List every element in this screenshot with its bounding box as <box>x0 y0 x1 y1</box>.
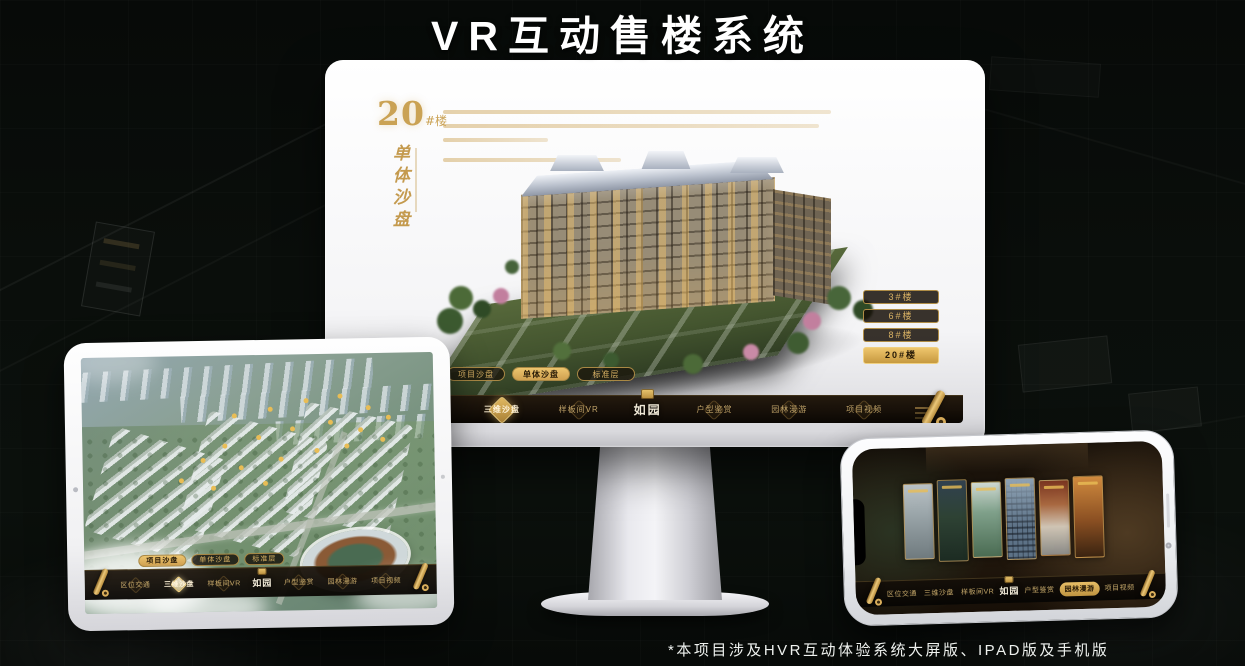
footnote: *本项目涉及HVR互动体验系统大屏版、IPAD版及手机版 <box>668 639 1109 660</box>
nav-item-location[interactable]: 区位交通 <box>885 586 919 601</box>
brand-logo[interactable]: 如园 <box>999 576 1020 598</box>
tab-standard-floor[interactable]: 标准层 <box>577 367 635 381</box>
building-side-face <box>773 189 831 304</box>
brand-seal-icon <box>1004 576 1013 583</box>
stage: VR互动售楼系统 20#楼 单体沙盘 <box>0 0 1245 666</box>
tree <box>787 332 809 354</box>
tablet-tab-standard-floor[interactable]: 标准层 <box>244 553 284 566</box>
nav-item-project-video[interactable]: 项目视频 <box>842 401 886 418</box>
tab-single-sandbox[interactable]: 单体沙盘 <box>512 367 570 381</box>
scroll-icon[interactable] <box>865 578 882 604</box>
building-render <box>435 140 909 392</box>
nav-item-3d-sandbox[interactable]: 三维沙盘 <box>162 577 196 592</box>
tree <box>827 286 851 310</box>
monitor-stand-neck <box>588 430 722 600</box>
phone-device: 区位交通 三维沙盘 样板间VR 如园 户型鉴赏 园林漫游 项目视频 <box>839 429 1178 626</box>
building-front-face <box>521 177 775 319</box>
tree <box>473 300 491 318</box>
scroll-icon[interactable] <box>412 564 428 590</box>
tree <box>553 342 571 360</box>
phone-notch <box>853 499 866 565</box>
building-roof-cap <box>637 151 695 169</box>
tablet-device: 项目沙盘 单体沙盘 标准层 区位交通 三维沙盘 样板间VR 如园 户型鉴赏 园林… <box>64 337 455 632</box>
tree <box>505 260 519 274</box>
gallery-panel-interior[interactable] <box>1073 475 1105 558</box>
unit-heading: 20#楼 <box>377 94 447 133</box>
pink-tree <box>493 288 509 304</box>
nav-item-3d-sandbox[interactable]: 三维沙盘 <box>922 585 956 600</box>
pink-tree <box>803 312 821 330</box>
building-button-6[interactable]: 6#楼 <box>863 309 939 323</box>
phone-screen: 区位交通 三维沙盘 样板间VR 如园 户型鉴赏 园林漫游 项目视频 <box>852 441 1167 616</box>
gallery-panel-courtyard[interactable] <box>903 483 935 560</box>
nav-item-floorplans[interactable]: 户型鉴赏 <box>1022 582 1056 597</box>
pink-tree <box>743 344 759 360</box>
brand-seal-icon <box>641 389 654 399</box>
nav-item-garden-tour[interactable]: 园林漫游 <box>1059 581 1099 596</box>
phone-bottom-navbar: 区位交通 三维沙盘 样板间VR 如园 户型鉴赏 园林漫游 项目视频 <box>855 573 1166 608</box>
nav-item-showroom-vr[interactable]: 样板间VR <box>959 584 997 599</box>
unit-title-vertical: 单体沙盘 <box>387 144 412 232</box>
building-selector: 3#楼 6#楼 8#楼 20#楼 <box>863 290 939 364</box>
building-button-8[interactable]: 8#楼 <box>863 328 939 342</box>
nav-item-showroom-vr[interactable]: 样板间VR <box>555 401 603 418</box>
tablet-tab-single-sandbox[interactable]: 单体沙盘 <box>191 553 239 566</box>
brand-seal-icon <box>258 568 267 575</box>
tablet-screen: 项目沙盘 单体沙盘 标准层 区位交通 三维沙盘 样板间VR 如园 户型鉴赏 园林… <box>81 352 437 614</box>
building-roof-cap <box>545 155 609 171</box>
scroll-icon[interactable] <box>1139 570 1156 596</box>
phone-speaker-icon <box>1166 494 1170 528</box>
nav-item-project-video[interactable]: 项目视频 <box>369 573 403 588</box>
panorama-gallery <box>903 478 1105 563</box>
tablet-camera-icon <box>73 487 78 492</box>
tablet-sensor-icon <box>441 475 445 479</box>
scroll-cap <box>936 417 946 424</box>
brand-logo[interactable]: 如园 <box>634 389 662 418</box>
nav-item-showroom-vr[interactable]: 样板间VR <box>205 576 242 591</box>
tree <box>603 352 619 368</box>
building-roof-cap <box>725 157 789 173</box>
nav-item-garden-tour[interactable]: 园林漫游 <box>767 401 811 418</box>
nav-item-3d-sandbox[interactable]: 三维沙盘 <box>480 401 524 418</box>
tree <box>683 354 703 374</box>
gallery-panel-autumn[interactable] <box>1039 479 1071 556</box>
tree <box>437 308 463 334</box>
unit-title-divider <box>415 148 417 212</box>
building-button-20[interactable]: 20#楼 <box>863 347 939 364</box>
page-title: VR互动售楼系统 <box>0 2 1245 62</box>
gallery-panel-building[interactable] <box>1005 477 1037 560</box>
tree <box>449 286 473 310</box>
building-button-3[interactable]: 3#楼 <box>863 290 939 304</box>
nav-item-location[interactable]: 区位交通 <box>118 577 152 592</box>
interior-light-beam <box>926 443 1088 473</box>
view-tabs: 项目沙盘 单体沙盘 标准层 <box>447 367 635 381</box>
tablet-bottom-navbar: 区位交通 三维沙盘 样板间VR 如园 户型鉴赏 园林漫游 项目视频 <box>84 564 436 600</box>
scroll-icon[interactable] <box>917 395 951 424</box>
gallery-panel-garden-night[interactable] <box>937 479 969 562</box>
scroll-icon[interactable] <box>92 569 108 595</box>
background-building <box>1018 335 1113 392</box>
brand-logo[interactable]: 如园 <box>252 568 272 589</box>
tablet-tab-project-sandbox[interactable]: 项目沙盘 <box>138 554 186 567</box>
brand-logo-text: 如园 <box>634 401 662 418</box>
background-building <box>1128 386 1202 433</box>
phone-camera-icon <box>1165 542 1171 548</box>
nav-item-floorplans[interactable]: 户型鉴赏 <box>282 575 316 590</box>
nav-item-floorplans[interactable]: 户型鉴赏 <box>692 401 736 418</box>
tab-project-sandbox[interactable]: 项目沙盘 <box>447 367 505 381</box>
nav-item-project-video[interactable]: 项目视频 <box>1102 580 1136 595</box>
nav-item-garden-tour[interactable]: 园林漫游 <box>325 574 359 589</box>
tablet-view-tabs: 项目沙盘 单体沙盘 标准层 <box>138 553 284 568</box>
gallery-panel-landscape[interactable] <box>971 481 1003 558</box>
unit-number: 20 <box>377 94 425 133</box>
